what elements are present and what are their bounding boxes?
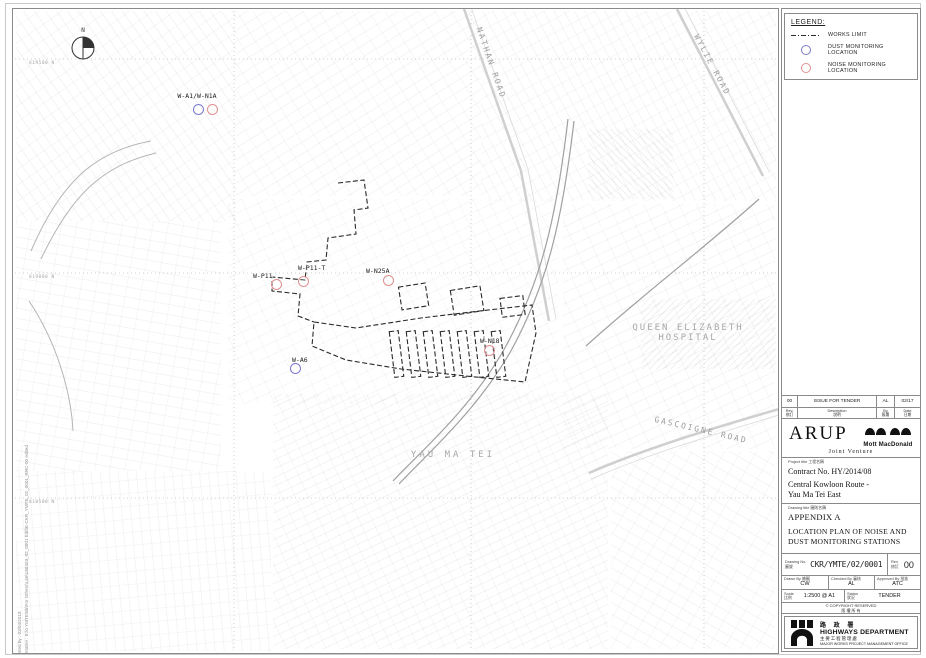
- noise-marker-w-n18: [484, 345, 495, 356]
- joint-venture-label: Joint Venture: [782, 449, 920, 455]
- drawing-number-row: Drawing No. 圖號 CKR/YMTE/02/0001 Rev. 修訂 …: [782, 553, 920, 575]
- department-name-cn: 路 政 署: [820, 620, 909, 629]
- dust-marker-w-a1: [193, 104, 204, 115]
- works-limit-outline: [272, 180, 536, 382]
- highways-department-block: 路 政 署 HIGHWAYS DEPARTMENT 主要工程管理處 MAJOR …: [784, 616, 918, 649]
- arup-logo: ARUP: [789, 423, 848, 445]
- legend-label: WORKS LIMIT: [828, 32, 867, 38]
- revision-header-date: Date 日期: [894, 408, 920, 418]
- drawing-number-cell: Drawing No. 圖號 CKR/YMTE/02/0001: [782, 554, 887, 575]
- revision-header-row: Rev. 修訂 Description 說明 By 簽署 Date 日期: [782, 407, 920, 418]
- label: Approved By: [877, 576, 899, 581]
- station-label-w-p11: W-P11: [253, 272, 273, 280]
- project-name-line1: Central Kowloon Route -: [788, 480, 914, 490]
- revision-label: Rev. 修訂: [891, 560, 899, 569]
- status-value: TENDER: [861, 593, 918, 599]
- status-label: Status 狀況: [847, 592, 858, 601]
- label-cn: 圖則名稱: [811, 505, 827, 510]
- drawing-title-line1: LOCATION PLAN OF NOISE AND: [788, 527, 914, 537]
- checked-by-cell: Checked By 審核 AL: [828, 576, 874, 589]
- highways-department-logo-icon: [790, 620, 814, 646]
- legend-item-dust: DUST MONITORING LOCATION: [791, 44, 911, 56]
- print-note: Printed by : 03/04/2018 Filename : E:\0 …: [16, 444, 31, 654]
- status-cell: Status 狀況 TENDER: [844, 590, 920, 602]
- approved-by-cell: Approved By 批准 ATC: [874, 576, 920, 589]
- drawing-title: LOCATION PLAN OF NOISE AND DUST MONITORI…: [788, 527, 914, 547]
- station-label-w-p11-t: W-P11-T: [298, 264, 325, 272]
- label-cn: 比例: [784, 595, 792, 600]
- revision-header-rev: Rev. 修訂: [782, 408, 797, 418]
- drawing-title-label: Drawing title 圖則名稱: [788, 506, 914, 510]
- department-block-wrap: 路 政 署 HIGHWAYS DEPARTMENT 主要工程管理處 MAJOR …: [782, 613, 920, 649]
- label: Drawn By: [784, 576, 801, 581]
- works-limit-line-icon: [791, 34, 821, 37]
- revision-header-by: By 簽署: [876, 408, 894, 418]
- north-label: N: [68, 27, 98, 34]
- station-label-w-a1-w-n1a: W-A1/W-N1A: [177, 92, 216, 100]
- project-name: Central Kowloon Route - Yau Ma Tei East: [788, 480, 914, 500]
- mott-macdonald-logo: Mott MacDonald: [861, 423, 915, 448]
- label-cn: 圖號: [785, 564, 793, 569]
- label: Project title: [788, 459, 807, 464]
- office-name-en: MAJOR WORKS PROJECT MANAGEMENT OFFICE: [820, 642, 909, 646]
- revision-date: 02/17: [894, 396, 920, 407]
- drawing-title-line2: DUST MONITORING STATIONS: [788, 537, 914, 547]
- scale-cell: Scale 比例 1:2500 @ A1: [782, 590, 844, 602]
- place-label-yau-ma-tei: YAU MA TEI: [411, 450, 495, 460]
- north-arrow-icon: [69, 34, 97, 62]
- revision-description: ISSUE FOR TENDER: [797, 396, 876, 407]
- joint-venture-logos: ARUP Mott MacDonald Joint Venture: [782, 418, 920, 457]
- drawn-by-value: CW: [784, 581, 826, 587]
- legend: LEGEND: WORKS LIMIT DUST MONITORING LOCA…: [784, 13, 918, 80]
- noise-marker-w-n25a: [383, 275, 394, 286]
- station-label-w-n25a: W-N25A: [366, 267, 389, 275]
- map-area: N 819500 N 819000 N 818500 N NATHAN ROAD…: [12, 8, 779, 654]
- place-label-hospital-line1: QUEEN ELIZABETH: [632, 323, 743, 333]
- drawing-number-label: Drawing No. 圖號: [785, 560, 806, 569]
- label-cn: 說明: [798, 413, 876, 417]
- department-name-en: HIGHWAYS DEPARTMENT: [820, 629, 909, 636]
- revision-header-description: Description 說明: [797, 408, 876, 418]
- label: Drawing title: [788, 505, 809, 510]
- project-name-line2: Yau Ma Tei East: [788, 490, 914, 500]
- label-cn: 修訂: [891, 564, 899, 569]
- title-panel: LEGEND: WORKS LIMIT DUST MONITORING LOCA…: [781, 8, 921, 652]
- revision-number: 00: [782, 396, 797, 407]
- legend-label: DUST MONITORING LOCATION: [828, 44, 911, 56]
- grid-label-northing: 819500 N: [29, 61, 55, 66]
- checked-by-value: AL: [831, 581, 872, 587]
- label-cn: 狀況: [847, 595, 855, 600]
- revision-by: AL: [876, 396, 894, 407]
- revision-cell: Rev. 修訂 00: [887, 554, 920, 575]
- mott-arches-icon: [865, 424, 911, 436]
- label-cn: 日期: [895, 413, 920, 417]
- grid-label-northing: 818500 N: [29, 500, 55, 505]
- label-cn: 審核: [853, 576, 861, 581]
- revision-row: 00 ISSUE FOR TENDER AL 02/17: [782, 396, 920, 407]
- label-cn: 繪圖: [802, 576, 810, 581]
- noise-circle-icon: [791, 63, 821, 73]
- scale-label: Scale 比例: [784, 592, 794, 601]
- place-label-hospital-line2: HOSPITAL: [632, 333, 743, 343]
- label-cn: 批准: [900, 576, 908, 581]
- project-title-box: Project title 工程名稱 Contract No. HY/2014/…: [782, 457, 920, 503]
- label-cn: 工程名稱: [808, 459, 824, 464]
- noise-marker-w-p11: [271, 279, 282, 290]
- legend-title: LEGEND:: [791, 19, 911, 26]
- dust-marker-w-a6: [290, 363, 301, 374]
- print-note-line1: Printed by : 03/04/2018: [16, 444, 23, 654]
- contract-number: Contract No. HY/2014/08: [788, 467, 914, 476]
- print-note-line2: Filename : E:\0 YMTE\6b\For Others\L4e\1…: [23, 444, 30, 654]
- approved-by-value: ATC: [877, 581, 918, 587]
- title-block: 00 ISSUE FOR TENDER AL 02/17 Rev. 修訂 Des…: [782, 395, 920, 651]
- dust-circle-icon: [791, 45, 821, 55]
- drawing-sheet: N 819500 N 819000 N 818500 N NATHAN ROAD…: [0, 0, 926, 658]
- legend-item-works-limit: WORKS LIMIT: [791, 32, 911, 38]
- noise-marker-w-n1a: [207, 104, 218, 115]
- label-cn: 修訂: [782, 413, 797, 417]
- grid-label-northing: 819000 N: [29, 275, 55, 280]
- appendix-label: APPENDIX A: [788, 512, 914, 522]
- project-title-label: Project title 工程名稱: [788, 460, 914, 464]
- mott-macdonald-name: Mott MacDonald: [861, 442, 915, 448]
- station-label-w-n18: W-N18: [480, 337, 500, 345]
- copyright-row: © COPYRIGHT RESERVED 版 權 所 有: [782, 602, 920, 613]
- place-label-hospital: QUEEN ELIZABETH HOSPITAL: [632, 323, 743, 343]
- drawn-by-cell: Drawn By 繪圖 CW: [782, 576, 828, 589]
- north-arrow: N: [68, 27, 98, 67]
- revision-value: 00: [901, 560, 917, 570]
- drawing-number: CKR/YMTE/02/0001: [808, 560, 884, 569]
- scale-value: 1:2500 @ A1: [797, 593, 842, 599]
- legend-item-noise: NOISE MONITORING LOCATION: [791, 62, 911, 74]
- noise-marker-w-p11-t: [298, 276, 309, 287]
- label-cn: 簽署: [877, 413, 894, 417]
- label: Checked By: [831, 576, 852, 581]
- drawing-title-box: Drawing title 圖則名稱 APPENDIX A LOCATION P…: [782, 503, 920, 553]
- personnel-row: Drawn By 繪圖 CW Checked By 審核 AL Approved…: [782, 575, 920, 589]
- legend-label: NOISE MONITORING LOCATION: [828, 62, 911, 74]
- highways-department-text: 路 政 署 HIGHWAYS DEPARTMENT 主要工程管理處 MAJOR …: [820, 620, 909, 646]
- scale-status-row: Scale 比例 1:2500 @ A1 Status 狀況 TENDER: [782, 589, 920, 602]
